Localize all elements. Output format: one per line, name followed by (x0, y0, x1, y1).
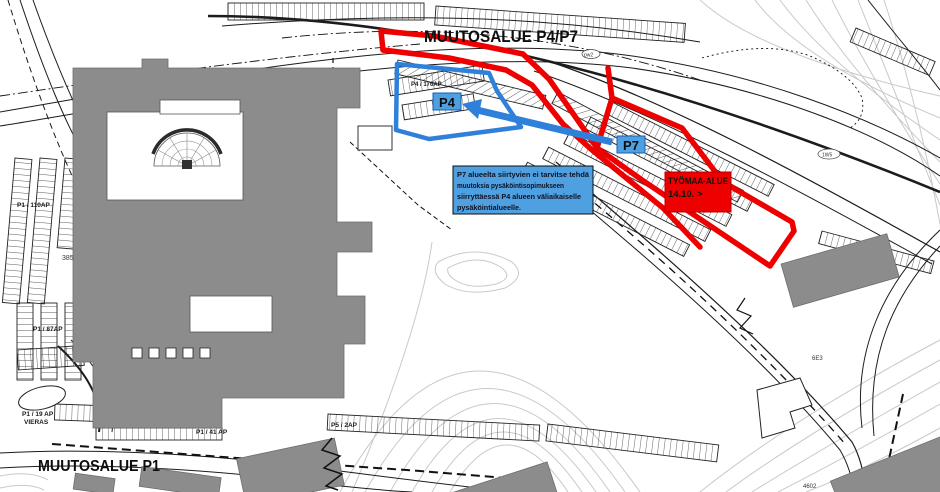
fan-hub (182, 160, 192, 169)
parking-row (228, 3, 424, 20)
title-change-area-p4p7: MUUTOSALUE P4/P7 (424, 27, 578, 46)
label-p4-capacity: P4 / 176AP (411, 82, 442, 88)
label-6e3: 6E3 (812, 356, 823, 362)
label-4602: 4602 (803, 484, 817, 490)
label-p1-41: P1 / 41 AP (196, 429, 228, 436)
annex-structure (358, 126, 392, 150)
info-box-line2: muutoksia pysäköintisopimukseen (457, 181, 564, 190)
info-box-line4: pysäköintialueelle. (457, 203, 521, 212)
label-vieras: VIERAS (24, 419, 49, 426)
p4-zone-label: P4 (439, 95, 456, 110)
courtyard-notch (160, 100, 240, 114)
label-1w5: 1W5 (822, 153, 833, 159)
label-p1-19: P1 / 19 AP (22, 411, 54, 418)
work-area-date: 14.10. > (668, 189, 703, 200)
info-box: P7 alueelta siirtyvien ei tarvitse tehdä… (453, 166, 593, 214)
label-385: 385 (62, 255, 74, 262)
label-p5-2: P5 / 2AP (331, 422, 358, 429)
site-plan-map: TYÖMAA-ALUE 14.10. > P4 P7 P7 alueelta s… (0, 0, 940, 492)
p7-zone-label: P7 (623, 138, 639, 153)
label-p1-110: P1 / 110AP (17, 202, 51, 209)
work-area-title: TYÖMAA-ALUE (668, 176, 728, 187)
label-pw2: pw2 (584, 53, 593, 59)
info-box-line3: siirryttäessä P4 alueen väliaikaiselle (457, 192, 581, 201)
map-canvas: TYÖMAA-ALUE 14.10. > P4 P7 P7 alueelta s… (0, 0, 940, 492)
title-change-area-p1: MUUTOSALUE P1 (38, 458, 160, 475)
label-p1-87: P1 / 87AP (33, 326, 63, 333)
info-box-line1: P7 alueelta siirtyvien ei tarvitse tehdä (457, 170, 590, 179)
building-cutout (190, 296, 272, 332)
